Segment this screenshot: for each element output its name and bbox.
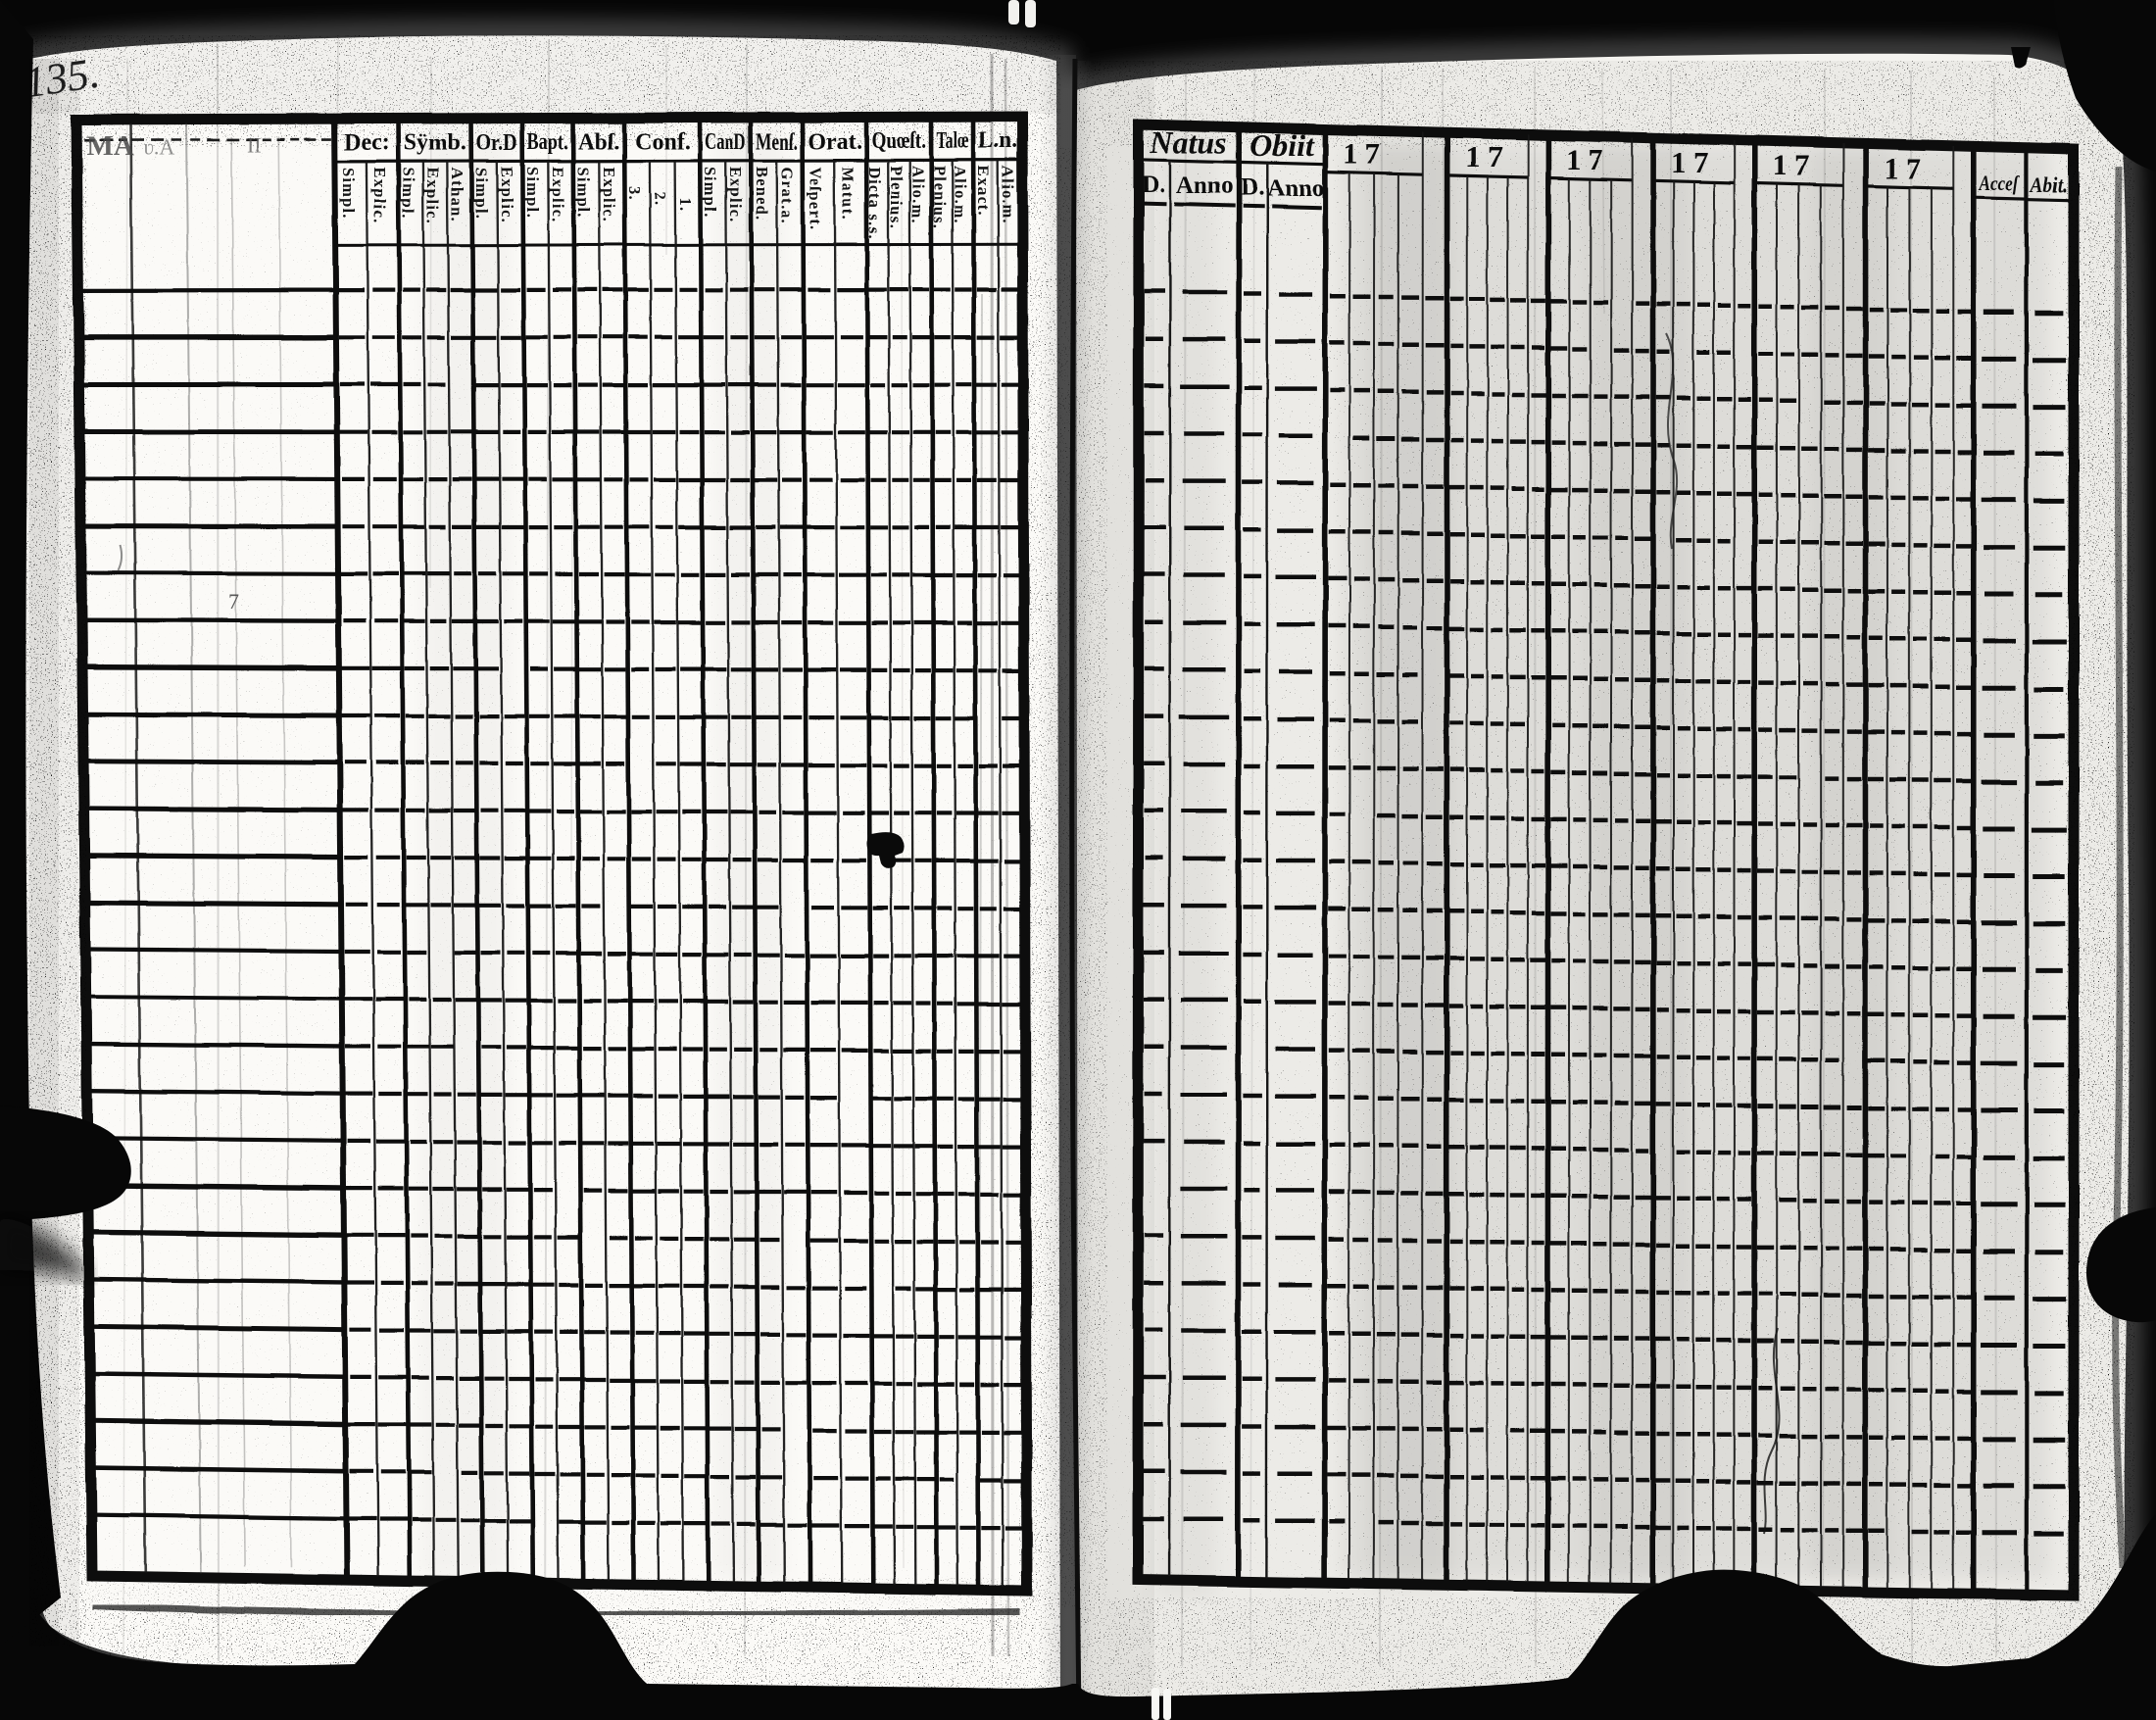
svg-text:Orat.: Orat. — [808, 129, 861, 155]
svg-text:Menſ.: Menſ. — [757, 129, 799, 155]
svg-text:Explic.: Explic. — [498, 167, 516, 222]
svg-text:Alio.m.: Alio.m. — [999, 166, 1017, 224]
svg-text:Athan.: Athan. — [448, 168, 466, 221]
svg-text:Alio.m.: Alio.m. — [951, 166, 969, 224]
svg-text:Dicta s.s.: Dicta s.s. — [865, 167, 884, 240]
svg-text:Acceſ: Acceſ — [1978, 171, 2021, 195]
svg-text:3.: 3. — [625, 186, 644, 201]
svg-text:Grat.a.: Grat.a. — [778, 167, 797, 224]
svg-text:Alio.m.: Alio.m. — [908, 166, 927, 224]
svg-text:17: 17 — [1465, 139, 1509, 173]
svg-text:Matut.: Matut. — [839, 167, 857, 221]
svg-text:D.: D. — [1142, 172, 1165, 198]
svg-text:Talœ: Talœ — [937, 128, 969, 154]
svg-text:Simpl.: Simpl. — [339, 168, 358, 220]
svg-text:Simpl.: Simpl. — [523, 167, 542, 219]
svg-text:Plenius.: Plenius. — [930, 166, 949, 229]
svg-text:Bapt.: Bapt. — [527, 129, 568, 155]
svg-text:Sÿmb.: Sÿmb. — [404, 130, 467, 156]
svg-text:Explic.: Explic. — [600, 167, 618, 222]
svg-text:Anno: Anno — [1267, 175, 1324, 202]
svg-text:Abſ.: Abſ. — [578, 129, 619, 155]
svg-text:Explic.: Explic. — [726, 167, 745, 222]
svg-text:Simpl.: Simpl. — [472, 168, 491, 220]
svg-text:1.: 1. — [676, 198, 695, 213]
svg-text:Explic.: Explic. — [423, 168, 442, 223]
svg-text:Dec:: Dec: — [344, 130, 390, 156]
svg-text:Or.D: Or.D — [476, 130, 517, 156]
svg-text:Veſpert.: Veſpert. — [807, 167, 825, 230]
svg-text:MA: MA — [86, 130, 133, 162]
svg-text:Bened.: Bened. — [753, 167, 771, 221]
svg-text:D.: D. — [1241, 174, 1264, 201]
svg-text:Explic.: Explic. — [549, 167, 567, 222]
svg-text:ʋ.A: ʋ.A — [143, 134, 174, 159]
svg-text:Exact.: Exact. — [974, 166, 993, 217]
svg-text:Anno: Anno — [1176, 172, 1233, 199]
svg-text:7: 7 — [228, 589, 239, 614]
svg-text:Plenius.: Plenius. — [887, 166, 906, 229]
svg-text:Conf.: Conf. — [635, 129, 691, 155]
svg-text:Abit.: Abit. — [2029, 172, 2068, 197]
svg-text:Natus: Natus — [1150, 124, 1227, 160]
svg-text:L.n.: L.n. — [978, 128, 1017, 154]
svg-text:Simpl.: Simpl. — [701, 167, 719, 219]
svg-text:Obiit: Obiit — [1249, 127, 1315, 163]
svg-text:17: 17 — [1343, 136, 1387, 171]
svg-text:ΙΙ: ΙΙ — [247, 132, 262, 157]
svg-text:17: 17 — [1772, 148, 1816, 182]
svg-text:2.: 2. — [651, 192, 669, 207]
svg-text:Simpl.: Simpl. — [574, 167, 593, 219]
svg-text:CanD: CanD — [705, 129, 746, 155]
svg-text:Quœſt.: Quœſt. — [871, 128, 926, 154]
svg-text:17: 17 — [1884, 151, 1928, 185]
svg-text:Simpl.: Simpl. — [399, 168, 417, 220]
svg-text:17: 17 — [1671, 145, 1715, 179]
svg-text:Explic.: Explic. — [370, 168, 389, 223]
svg-text:17: 17 — [1566, 142, 1610, 176]
